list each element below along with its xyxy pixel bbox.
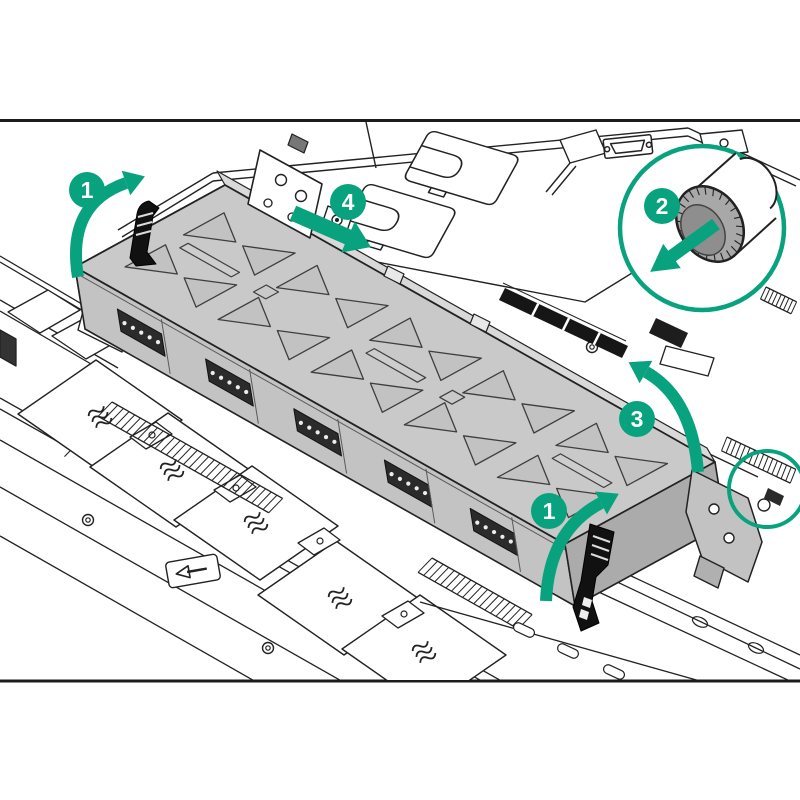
illustration-canvas (0, 0, 800, 800)
hardware-install-illustration: 1 4 2 3 1 (0, 0, 800, 800)
vga-connector (603, 135, 653, 159)
callout-step-4-badge: 4 (330, 184, 366, 220)
callout-step-2-badge: 2 (644, 188, 680, 224)
magnifier-inset-connector (729, 451, 800, 527)
magnifier-inset-thumbscrew (620, 146, 786, 310)
rear-bracket (560, 130, 606, 163)
callout-step-3-badge: 3 (619, 401, 655, 437)
airflow-arrow-sticker (165, 554, 221, 589)
callout-step-1-right-badge: 1 (531, 493, 567, 529)
hinge-pin (288, 134, 308, 153)
left-wall-block (0, 330, 16, 366)
board-connector (649, 318, 688, 348)
callout-step-1-left-badge: 1 (69, 172, 105, 208)
rail-vent-holes (512, 615, 765, 681)
